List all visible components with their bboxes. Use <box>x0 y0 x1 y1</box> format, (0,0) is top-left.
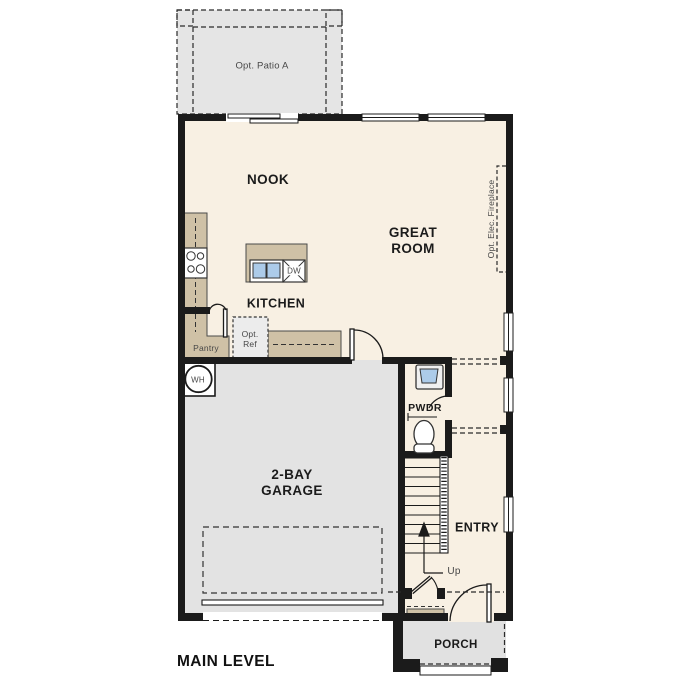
toilet-icon <box>414 421 434 454</box>
wall-right <box>506 114 513 621</box>
room-label-great-room: GREAT ROOM <box>380 225 446 257</box>
room-label-garage: 2-BAY GARAGE <box>253 467 331 499</box>
window-hall-right <box>504 378 513 412</box>
window-entry-right <box>504 497 513 532</box>
range-icon <box>184 248 207 278</box>
window-nook <box>362 114 419 121</box>
room-label-kitchen: KITCHEN <box>247 297 305 312</box>
sliding-door <box>226 113 298 123</box>
room-label-porch: PORCH <box>434 639 478 653</box>
annotation-opt-fireplace: Opt. Elec. Fireplace <box>486 180 496 259</box>
porch-post-left <box>393 659 420 672</box>
floor-plan-geometry <box>0 0 687 687</box>
wall-closet-stub-left <box>405 588 412 599</box>
wall-garage-right <box>398 357 405 621</box>
porch-wall-left <box>393 621 403 663</box>
porch-step <box>420 666 491 675</box>
annotation-dishwasher: DW <box>286 266 302 275</box>
room-label-powder: PWDR <box>408 402 442 414</box>
garage-door-panel <box>202 600 383 605</box>
porch-post-right <box>491 658 508 672</box>
wall-kitchen-garage-right <box>382 357 452 364</box>
wall-kitchen-garage-left <box>178 357 352 364</box>
annotation-opt-patio: Opt. Patio A <box>235 60 288 71</box>
powder-sink-icon <box>416 365 443 389</box>
room-label-entry: ENTRY <box>455 521 499 536</box>
annotation-pantry: Pantry <box>193 343 219 353</box>
room-label-nook: NOOK <box>247 172 289 188</box>
window-great-room-right <box>504 313 513 351</box>
window-great-room-top <box>428 114 485 121</box>
annotation-stairs-up: Up <box>447 566 460 578</box>
annotation-opt-ref: Opt. Ref <box>242 329 259 349</box>
annotation-water-heater: WH <box>191 375 205 384</box>
wall-pantry-stub <box>178 307 210 314</box>
wall-powder-right-upper <box>445 357 452 397</box>
floor-plan: NOOK GREAT ROOM KITCHEN 2-BAY GARAGE PWD… <box>0 0 687 687</box>
plan-title: MAIN LEVEL <box>177 653 275 671</box>
kitchen-sink-icon <box>250 260 283 282</box>
stair-rail <box>440 456 448 553</box>
wall-left <box>178 114 185 621</box>
